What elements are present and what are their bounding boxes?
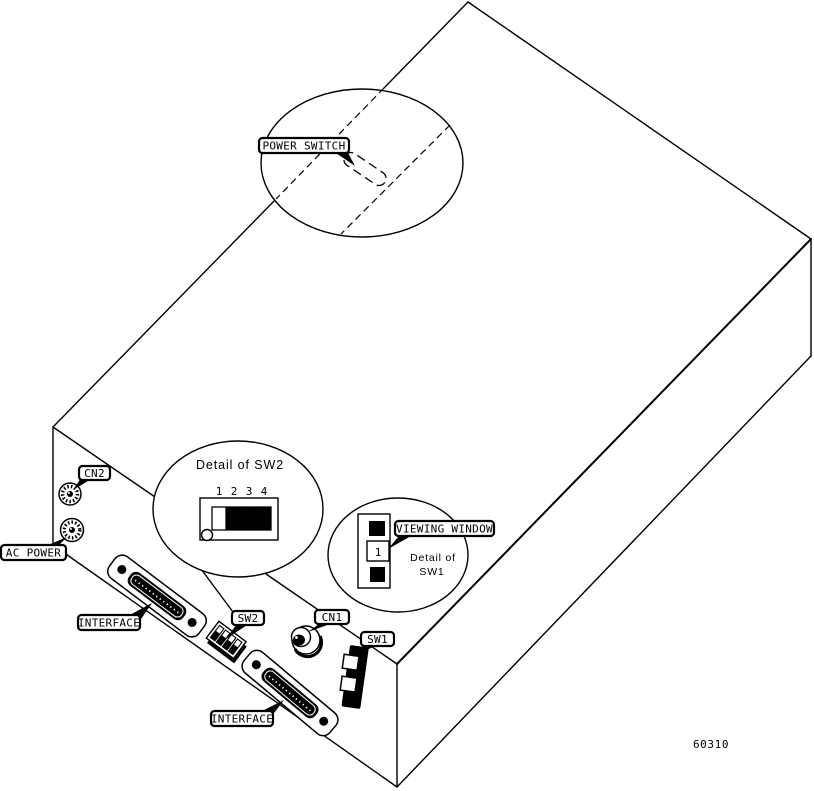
callout-ac-power: AC POWER [1, 537, 67, 560]
sw1-detail-window-value: 1 [375, 546, 382, 559]
callout-cn1-text: CN1 [322, 611, 343, 624]
device-diagram: Detail of SW2 1 2 3 4 1 Detail of SW1 [0, 0, 814, 791]
power-switch-area [261, 88, 463, 237]
callout-cn2-text: CN2 [84, 467, 105, 480]
power-switch-cutout-ellipse [261, 89, 463, 237]
sw1-switch-button-bottom [340, 676, 357, 692]
sw1-detail-balloon: 1 Detail of SW1 [328, 498, 468, 612]
callout-sw2: SW2 [226, 611, 264, 639]
sw2-detail-switch-4 [257, 507, 271, 530]
sw1-switch [337, 644, 369, 709]
sw2-detail-pos-1: 1 [216, 485, 223, 498]
ac-power-connector-highlight [70, 528, 72, 530]
sw2-detail-pos-4: 4 [261, 485, 268, 498]
figure-number: 60310 [693, 738, 729, 751]
sw1-detail-bottom-block [370, 567, 385, 582]
callout-sw1: SW1 [353, 632, 394, 657]
sw1-switch-button-top [342, 654, 359, 670]
edge-top-left-a [384, 2, 468, 88]
cn1-connector [292, 626, 322, 657]
cn2-connector-center [67, 491, 73, 497]
edge-top-left-b [53, 199, 276, 427]
sw2-detail-switch-2 [227, 507, 241, 530]
sw1-detail-title-line1: Detail of [410, 552, 456, 564]
callout-viewing-window-text: VIEWING WINDOW [396, 523, 493, 536]
cn1-connector-hole [293, 635, 305, 646]
edge-right-top [397, 239, 811, 664]
callout-ac-power-text: AC POWER [6, 547, 61, 560]
cn1-connector-highlight [295, 636, 298, 639]
sw2-detail-title: Detail of SW2 [196, 458, 284, 472]
cn2-connector-highlight [68, 492, 70, 494]
callout-interface-lower-text: INTERFACE [211, 713, 273, 726]
sw2-detail-switch-1 [212, 507, 226, 530]
callout-interface-upper-text: INTERFACE [78, 617, 140, 630]
sw1-detail-top-block [369, 521, 385, 536]
callout-power-switch-text: POWER SWITCH [262, 140, 345, 153]
callout-cn1: CN1 [308, 610, 349, 632]
diagram-page: Detail of SW2 1 2 3 4 1 Detail of SW1 [0, 0, 814, 791]
sw1-detail-title-line2: SW1 [419, 566, 444, 578]
callout-interface-lower: INTERFACE [211, 700, 284, 726]
sw2-detail-balloon: Detail of SW2 1 2 3 4 [153, 441, 323, 612]
callout-sw2-text: SW2 [238, 612, 259, 625]
ac-power-connector [61, 519, 84, 542]
callout-cn2: CN2 [73, 466, 110, 490]
sw2-detail-pos-2: 2 [231, 485, 238, 498]
edge-top-right [468, 2, 811, 239]
ac-power-connector-center [69, 527, 75, 533]
sw2-detail-pos-3: 3 [246, 485, 253, 498]
sw2-detail-index-dot [202, 530, 213, 541]
sw2-detail-switch-3 [242, 507, 256, 530]
callout-sw1-text: SW1 [367, 633, 388, 646]
